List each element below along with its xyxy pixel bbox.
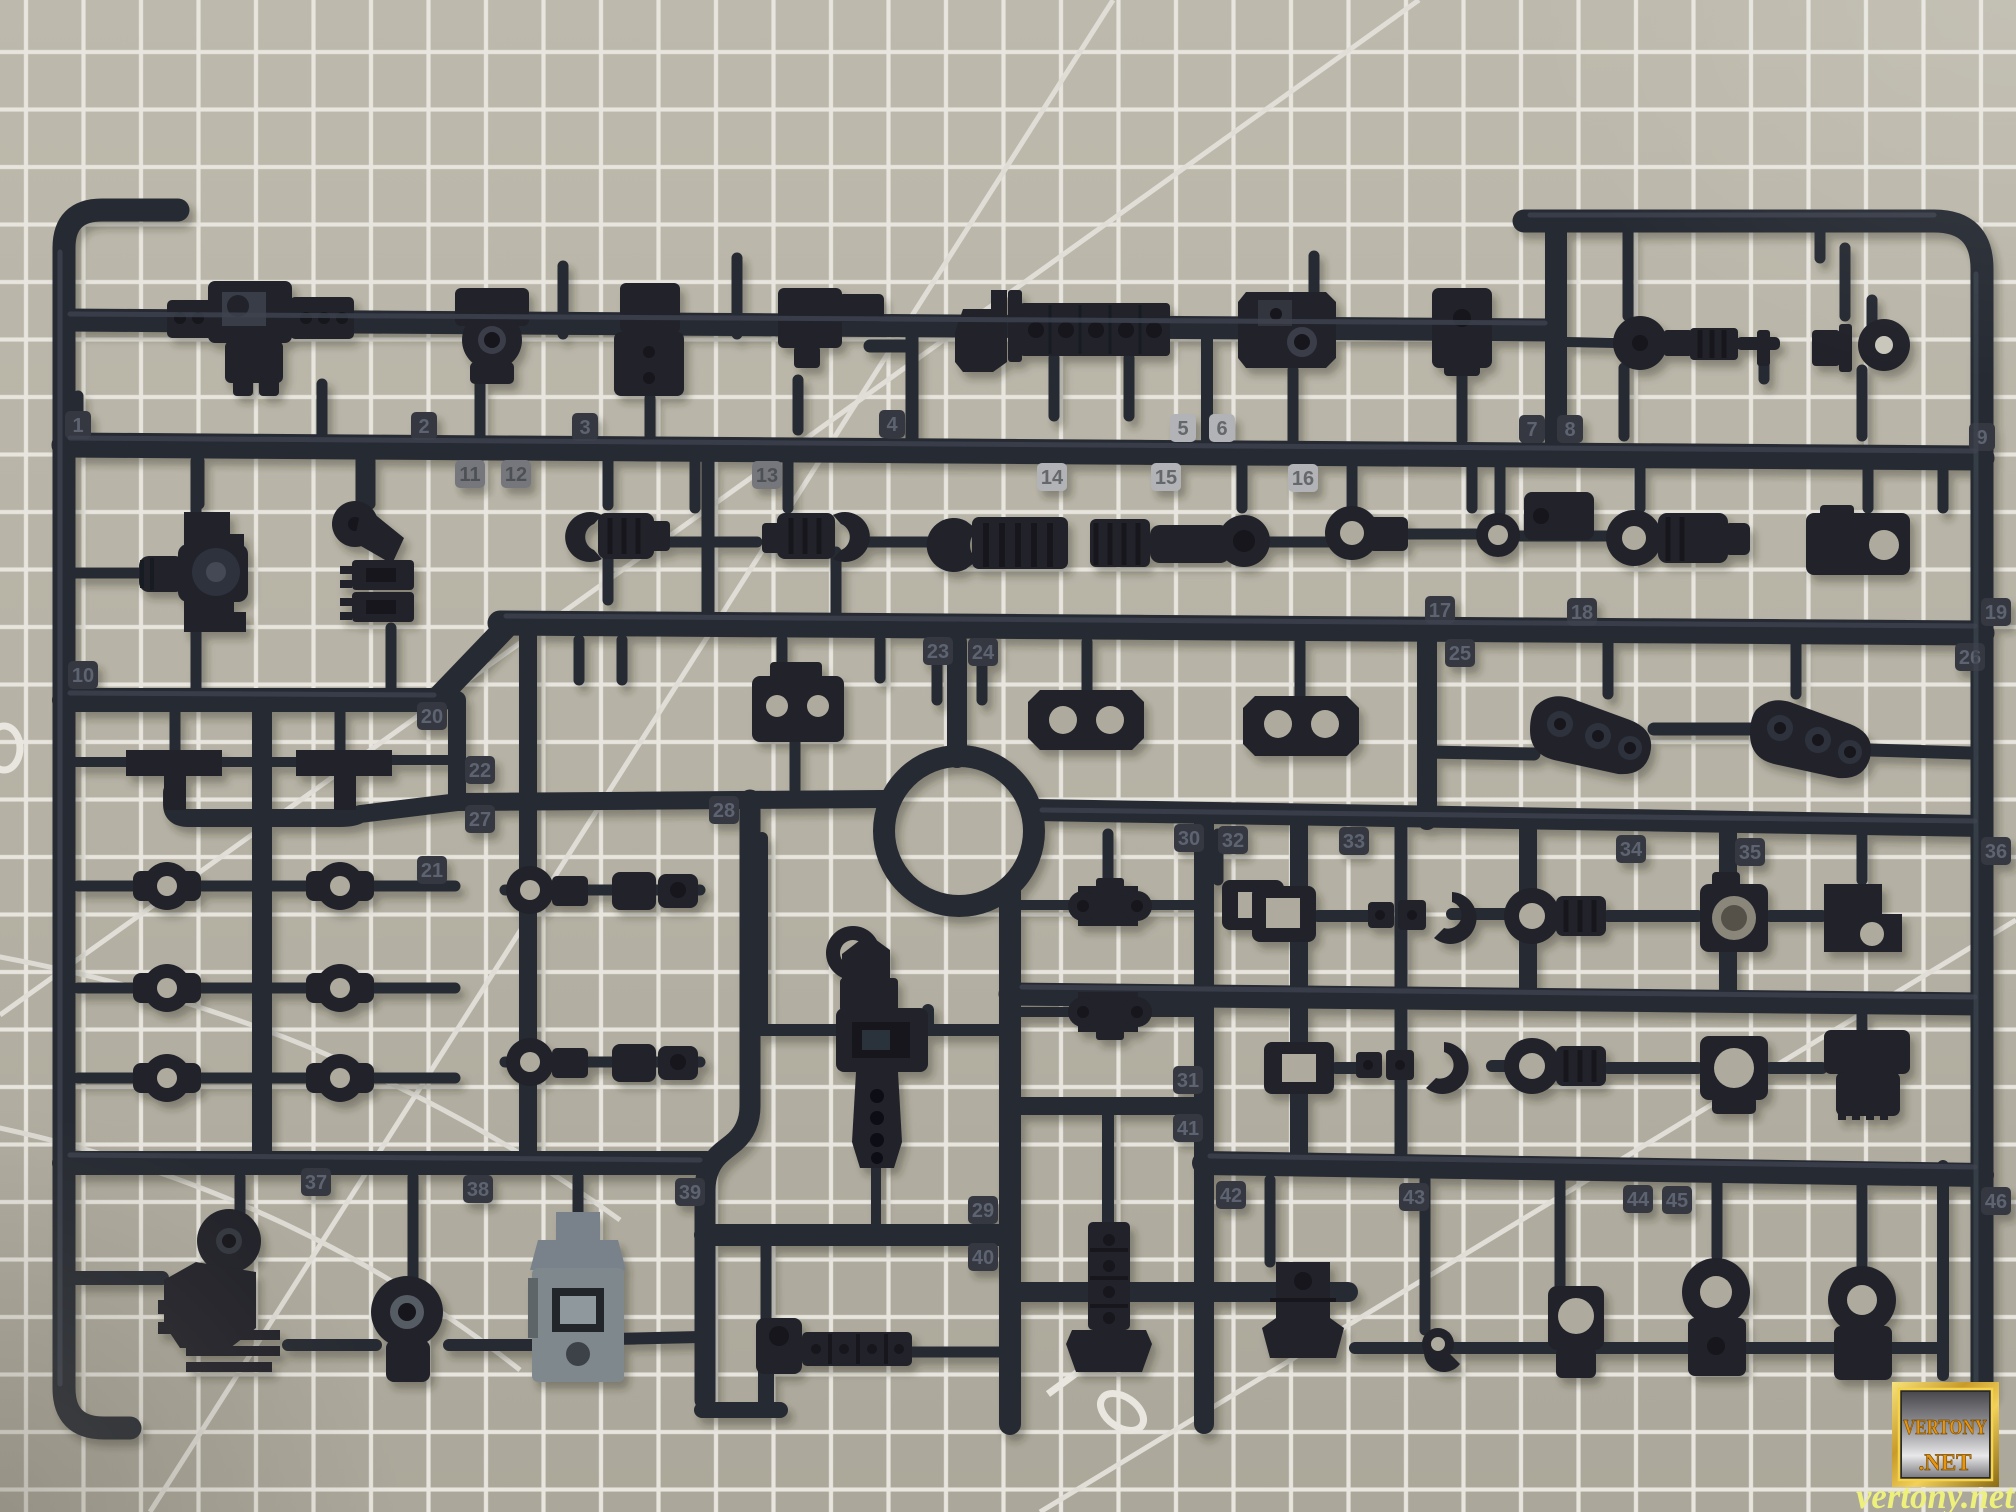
svg-text:.NET: .NET xyxy=(1918,1450,1971,1475)
svg-text:2: 2 xyxy=(418,416,429,438)
svg-text:32: 32 xyxy=(1222,830,1244,852)
svg-text:1: 1 xyxy=(72,415,83,437)
svg-text:13: 13 xyxy=(756,465,778,487)
svg-text:11: 11 xyxy=(459,464,480,486)
svg-text:44: 44 xyxy=(1627,1189,1650,1211)
svg-text:3: 3 xyxy=(579,417,590,439)
svg-text:30: 30 xyxy=(1178,828,1200,850)
svg-text:41: 41 xyxy=(1177,1118,1199,1140)
svg-text:33: 33 xyxy=(1343,831,1365,853)
svg-text:35: 35 xyxy=(1739,842,1761,864)
svg-text:43: 43 xyxy=(1403,1187,1425,1209)
svg-text:24: 24 xyxy=(972,642,995,664)
svg-text:4: 4 xyxy=(886,414,898,436)
svg-text:VERTONY: VERTONY xyxy=(1903,1415,1987,1439)
svg-text:36: 36 xyxy=(1985,841,2007,863)
svg-text:46: 46 xyxy=(1985,1191,2007,1213)
svg-text:14: 14 xyxy=(1041,467,1064,489)
svg-text:31: 31 xyxy=(1177,1070,1199,1092)
svg-text:vertony.net: vertony.net xyxy=(1856,1476,2015,1512)
svg-text:29: 29 xyxy=(972,1200,994,1222)
svg-text:23: 23 xyxy=(927,641,949,663)
svg-text:42: 42 xyxy=(1220,1185,1242,1207)
svg-text:10: 10 xyxy=(72,665,94,687)
svg-text:40: 40 xyxy=(972,1247,994,1269)
svg-text:45: 45 xyxy=(1666,1190,1688,1212)
svg-text:12: 12 xyxy=(505,464,527,486)
svg-text:34: 34 xyxy=(1620,839,1643,861)
